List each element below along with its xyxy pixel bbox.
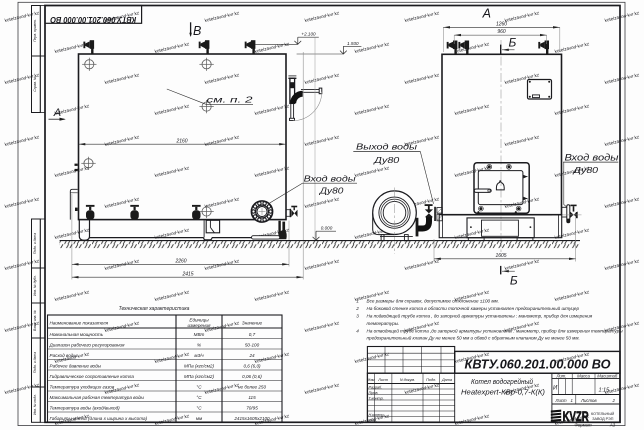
svg-text:см. п. 2: см. п. 2 <box>207 94 253 104</box>
svg-text:Подп.: Подп. <box>426 378 436 382</box>
svg-text:Выход воды: Выход воды <box>356 142 418 152</box>
svg-text:Справ. №: Справ. № <box>33 76 37 92</box>
svg-text:°С: °С <box>196 395 202 400</box>
svg-text:Подп. и дата: Подп. и дата <box>33 233 37 254</box>
svg-text:Температура воды (вход/выход): Температура воды (вход/выход) <box>50 406 121 411</box>
svg-text:На боковой стенке котла в обла: На боковой стенке котла в области топочн… <box>367 305 580 311</box>
svg-text:1605: 1605 <box>495 253 506 259</box>
svg-text:Техническая характеристика: Техническая характеристика <box>119 306 190 312</box>
svg-text:А3: А3 <box>609 423 616 428</box>
svg-text:Б: Б <box>508 35 516 49</box>
svg-text:1: 1 <box>356 299 359 304</box>
svg-text:Расход воды: Расход воды <box>50 353 78 358</box>
svg-text:2260: 2260 <box>174 258 186 264</box>
svg-text:Вход воды: Вход воды <box>565 152 619 162</box>
svg-text:Все размеры для справок, допус: Все размеры для справок, допустимое откл… <box>367 299 499 304</box>
svg-text:Инв. № дубл.: Инв. № дубл. <box>33 275 37 296</box>
svg-text:КВТУ.060.201.00.000 ВО: КВТУ.060.201.00.000 ВО <box>50 15 137 24</box>
svg-text:предохранительный клапан Ду н: предохранительный клапан Ду не менее 50 … <box>367 335 580 341</box>
svg-text:70/95: 70/95 <box>246 406 258 411</box>
svg-text:Рабочее давление воды: Рабочее давление воды <box>50 364 102 369</box>
svg-text:Масштаб: Масштаб <box>597 374 618 379</box>
svg-text:50-100: 50-100 <box>245 343 260 348</box>
svg-text:Ду80: Ду80 <box>572 165 598 175</box>
svg-text:мм: мм <box>196 416 203 421</box>
svg-text:Т.контр.: Т.контр. <box>369 396 384 400</box>
svg-text:115: 115 <box>248 395 256 400</box>
svg-text:0,6 (6,0): 0,6 (6,0) <box>243 364 261 369</box>
svg-text:°С: °С <box>196 385 202 390</box>
svg-text:Номинальная мощность: Номинальная мощность <box>50 332 104 337</box>
svg-text:Лит.: Лит. <box>555 374 566 379</box>
svg-text:На подводящей трубе котла ,: На подводящей трубе котла , до запорной … <box>367 313 593 319</box>
svg-text:Листов: Листов <box>580 398 597 403</box>
svg-text:Heatexpert-КВр-0,7-К(К): Heatexpert-КВр-0,7-К(К) <box>461 390 545 397</box>
svg-text:2160: 2160 <box>175 138 187 144</box>
svg-text:Б: Б <box>510 274 518 288</box>
svg-text:Ду80: Ду80 <box>373 155 400 165</box>
svg-text:1.930: 1.930 <box>347 41 359 46</box>
svg-text:+2.100: +2.100 <box>301 32 316 37</box>
svg-text:А: А <box>482 6 491 20</box>
svg-text:Лист: Лист <box>377 378 388 382</box>
svg-text:Утв.: Утв. <box>369 418 378 422</box>
svg-text:Наименование показателя: Наименование показателя <box>50 321 109 326</box>
svg-text:Перв. примен.: Перв. примен. <box>33 19 37 42</box>
svg-text:Значение: Значение <box>242 321 263 326</box>
svg-text:3: 3 <box>356 314 359 319</box>
svg-text:1:15: 1:15 <box>598 388 610 394</box>
svg-text:Пров.: Пров. <box>369 391 379 395</box>
svg-text:24: 24 <box>248 353 255 358</box>
svg-text:Подп. и дата: Подп. и дата <box>33 352 37 373</box>
svg-text:МПа (кгс/см2): МПа (кгс/см2) <box>184 364 214 369</box>
svg-text:м3/ч: м3/ч <box>194 353 204 358</box>
svg-text:N докум.: N докум. <box>400 378 415 382</box>
svg-text:Диапазон рабочего регулировани: Диапазон рабочего регулирования <box>49 343 126 348</box>
svg-text:Габариты котла (длина х ширина: Габариты котла (длина х ширина х высота) <box>50 416 148 421</box>
svg-text:температуры.: температуры. <box>367 321 400 326</box>
svg-text:измерения: измерения <box>188 323 212 328</box>
svg-text:Ду80: Ду80 <box>319 186 344 196</box>
svg-text:Лист: Лист <box>555 398 567 403</box>
svg-text:А: А <box>53 107 61 119</box>
svg-text:Н.контр.: Н.контр. <box>369 413 385 417</box>
svg-text:Формат: Формат <box>574 423 591 428</box>
svg-text:Дата: Дата <box>441 378 452 382</box>
svg-text:КВТУ.060.201.00.000 ВО: КВТУ.060.201.00.000 ВО <box>465 356 611 371</box>
svg-text:2415: 2415 <box>181 271 193 277</box>
svg-text:ЗАВОД РЭП: ЗАВОД РЭП <box>592 417 613 421</box>
svg-text:Разраб.: Разраб. <box>369 385 383 389</box>
svg-text:Гидравлическое сопротивление к: Гидравлическое сопротивление котла <box>50 374 135 379</box>
svg-text:КОТЕЛЬНЫЙ: КОТЕЛЬНЫЙ <box>591 412 614 416</box>
svg-text:2415х1605х2100: 2415х1605х2100 <box>233 416 270 421</box>
svg-text:0,7: 0,7 <box>249 332 256 337</box>
svg-text:В: В <box>193 24 201 38</box>
svg-text:960: 960 <box>497 29 506 35</box>
svg-text:Взам. инв. №: Взам. инв. № <box>33 310 37 331</box>
svg-text:4: 4 <box>356 328 359 333</box>
svg-text:2: 2 <box>355 306 359 311</box>
svg-text:1260: 1260 <box>496 21 507 27</box>
svg-text:И: И <box>553 386 558 392</box>
svg-text:Температура уходящих газов: Температура уходящих газов <box>50 385 115 390</box>
svg-text:°С: °С <box>196 406 202 411</box>
svg-text:Масса: Масса <box>577 374 590 379</box>
svg-text:Вход воды: Вход воды <box>304 173 357 183</box>
svg-text:не более 250: не более 250 <box>238 385 266 390</box>
svg-text:Инв. № подл.: Инв. № подл. <box>33 394 37 415</box>
svg-text:Котел водогрейный: Котел водогрейный <box>471 378 533 386</box>
svg-text:0,06 (0,6): 0,06 (0,6) <box>242 374 262 379</box>
svg-text:%: % <box>197 343 201 348</box>
svg-text:МВт: МВт <box>194 332 205 337</box>
svg-text:МПа (кгс/см2): МПа (кгс/см2) <box>184 374 214 379</box>
svg-text:Максимальная рабочая температу: Максимальная рабочая температура воды <box>50 395 145 400</box>
svg-text:На отводящей трубе котла ,до з: На отводящей трубе котла ,до запорной ар… <box>367 327 624 333</box>
svg-text:0.000: 0.000 <box>321 226 333 231</box>
svg-text:Изм: Изм <box>367 378 374 382</box>
